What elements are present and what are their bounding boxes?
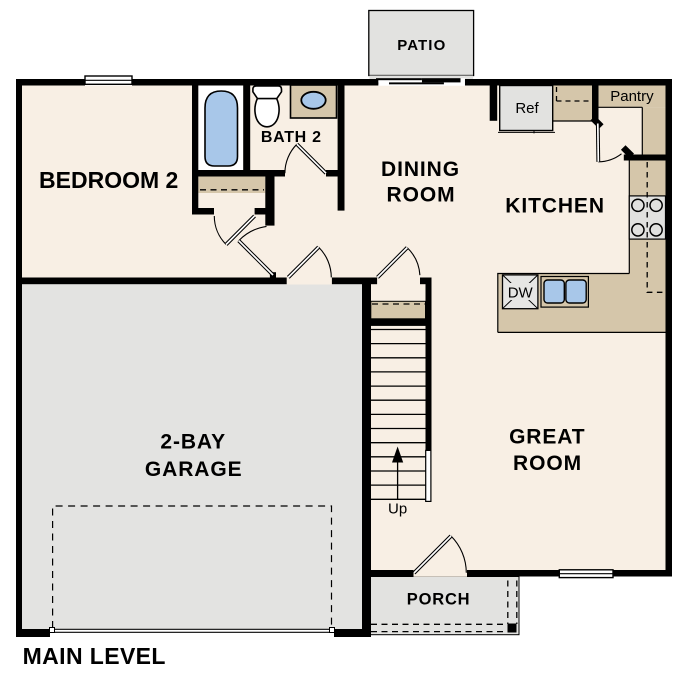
svg-text:2-BAY: 2-BAY xyxy=(160,431,226,454)
svg-text:PATIO: PATIO xyxy=(397,37,446,54)
svg-text:KITCHEN: KITCHEN xyxy=(505,195,605,218)
svg-text:ROOM: ROOM xyxy=(387,183,456,206)
svg-text:PORCH: PORCH xyxy=(407,590,471,608)
svg-text:BATH 2: BATH 2 xyxy=(261,129,322,146)
svg-text:GARAGE: GARAGE xyxy=(145,458,243,481)
svg-text:Up: Up xyxy=(388,501,407,518)
svg-text:Ref: Ref xyxy=(515,100,539,117)
svg-text:DW: DW xyxy=(508,285,534,302)
svg-text:ROOM: ROOM xyxy=(513,452,582,475)
svg-text:GREAT: GREAT xyxy=(509,426,585,449)
svg-text:Pantry: Pantry xyxy=(610,88,654,105)
svg-text:MAIN LEVEL: MAIN LEVEL xyxy=(23,643,166,669)
svg-text:BEDROOM 2: BEDROOM 2 xyxy=(39,167,178,193)
svg-text:DINING: DINING xyxy=(381,158,460,181)
